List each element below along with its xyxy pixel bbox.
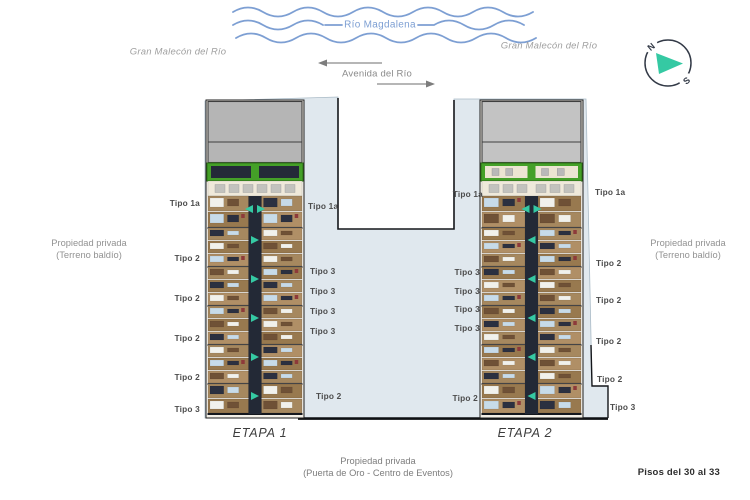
unit-type-label: Tipo 2 [596, 336, 621, 346]
unit-type-label: Tipo 2 [316, 391, 341, 401]
etapa-2-label: ETAPA 2 [498, 426, 553, 440]
unit-type-label: Tipo 3 [455, 267, 480, 277]
unit-type-label: Tipo 3 [310, 326, 335, 336]
note-line: Propiedad privada [650, 237, 725, 249]
unit-type-label: Tipo 3 [455, 304, 480, 314]
street-label-malecon-left: Gran Malecón del Río [130, 47, 226, 58]
floors-range-note: Pisos del 30 al 33 [638, 467, 720, 478]
unit-type-label: Tipo 2 [175, 372, 200, 382]
unit-type-label: Tipo 3 [455, 323, 480, 333]
compass-needle-icon [656, 53, 683, 74]
unit-type-label: Tipo 2 [175, 253, 200, 263]
private-property-left-note: Propiedad privada (Terreno baldío) [51, 237, 126, 261]
tower-etapa-1 [206, 100, 304, 418]
note-line: Propiedad privada [51, 237, 126, 249]
unit-type-label: Tipo 3 [610, 402, 635, 412]
street-label-malecon-right: Gran Malecón del Río [501, 41, 597, 52]
unit-type-label: Tipo 3 [310, 306, 335, 316]
private-property-right-note: Propiedad privada (Terreno baldío) [650, 237, 725, 261]
unit-type-label: Tipo 1a [453, 189, 483, 199]
unit-type-label: Tipo 3 [455, 286, 480, 296]
corridor [525, 196, 538, 414]
unit-type-label: Tipo 3 [310, 266, 335, 276]
site-plan: N S Río Magdalena Gran Malecón del Río G… [0, 0, 750, 500]
unit-type-label: Tipo 3 [175, 404, 200, 414]
street-label-avenida: Avenida del Río [342, 69, 412, 80]
unit-type-label: Tipo 2 [175, 333, 200, 343]
note-line: (Puerta de Oro - Centro de Eventos) [303, 467, 453, 479]
unit-type-label: Tipo 2 [175, 293, 200, 303]
compass: N S [644, 39, 693, 87]
note-line: (Terreno baldío) [51, 249, 126, 261]
unit-type-label: Tipo 1a [170, 198, 200, 208]
river-label: Río Magdalena [344, 20, 416, 31]
note-line: Propiedad privada [303, 455, 453, 467]
unit-type-label: Tipo 2 [453, 393, 478, 403]
courtyard-notch-outline [338, 98, 454, 229]
roof-block [482, 102, 581, 163]
unit-type-label: Tipo 1a [595, 187, 625, 197]
tower-etapa-2 [480, 100, 583, 418]
unit-type-label: Tipo 3 [310, 286, 335, 296]
roof-block [208, 102, 302, 163]
etapa-1-label: ETAPA 1 [233, 426, 288, 440]
note-line: (Terreno baldío) [650, 249, 725, 261]
unit-type-label: Tipo 2 [596, 295, 621, 305]
unit-type-label: Tipo 2 [597, 374, 622, 384]
corridor [249, 196, 262, 414]
private-property-bottom-note: Propiedad privada (Puerta de Oro - Centr… [303, 455, 453, 479]
unit-type-label: Tipo 2 [596, 258, 621, 268]
unit-type-label: Tipo 1a [308, 201, 338, 211]
